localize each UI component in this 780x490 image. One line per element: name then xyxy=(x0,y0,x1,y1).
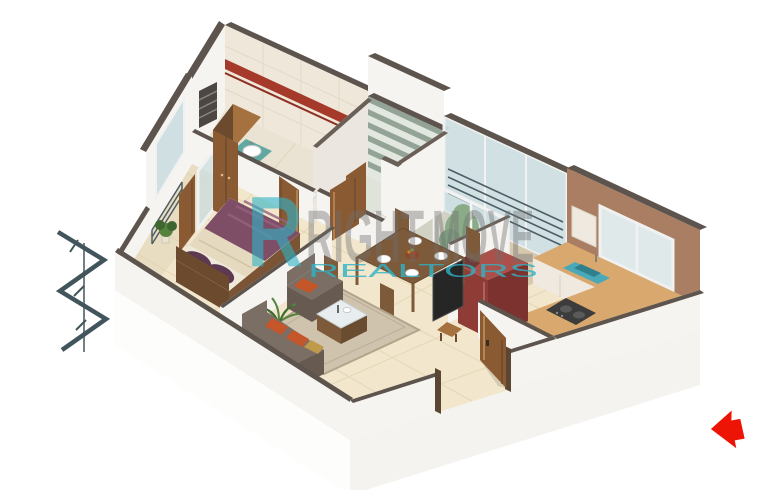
door-handle xyxy=(486,340,489,346)
watermark-subtitle: REALTORS xyxy=(308,261,538,281)
entry-arrow xyxy=(710,410,746,450)
watermark-logo: R xyxy=(247,176,303,288)
floor-plan-render: R RIGHT MOVE REALTORS xyxy=(0,0,780,490)
exterior-ladder xyxy=(58,232,106,352)
isometric-scene: R RIGHT MOVE REALTORS xyxy=(0,0,780,490)
